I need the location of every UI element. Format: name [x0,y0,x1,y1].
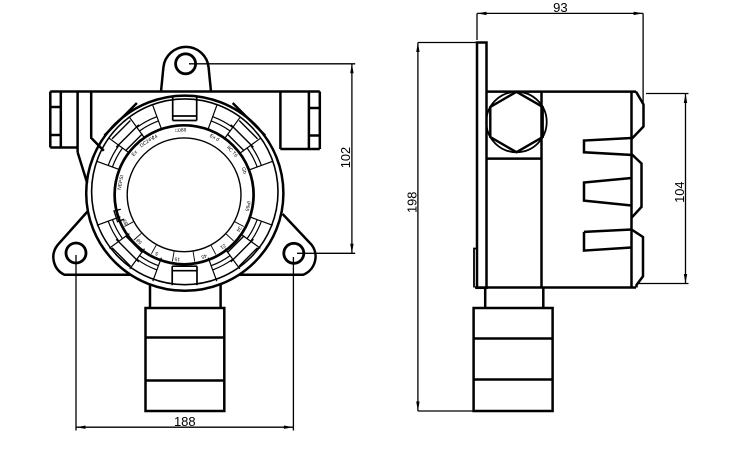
svg-text:□088: □088 [175,127,187,134]
svg-text:34: 34 [234,225,242,233]
svg-text:Gb: Gb [240,167,248,176]
svg-text:198: 198 [405,192,420,213]
svg-text:IP65: IP65 [243,200,251,211]
svg-text:104: 104 [672,182,687,203]
svg-text:93: 93 [553,0,567,15]
svg-text:102: 102 [338,147,353,168]
svg-text:45: 45 [200,252,207,259]
svg-text:188: 188 [174,414,196,429]
svg-text:24: 24 [151,134,159,142]
svg-text:15: 15 [174,255,180,262]
svg-text:5: 5 [154,250,159,257]
